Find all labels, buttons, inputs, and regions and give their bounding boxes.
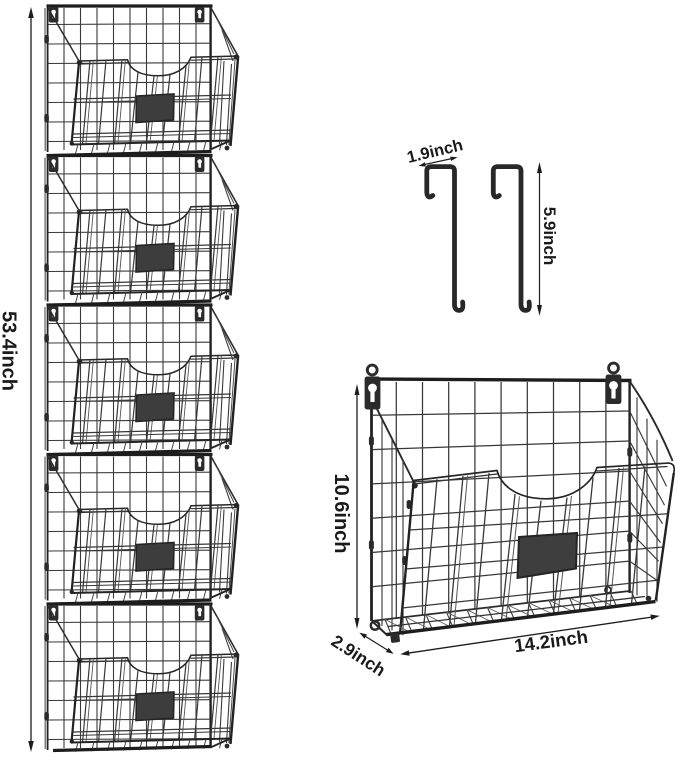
- svg-text:53.4inch: 53.4inch: [0, 311, 20, 391]
- svg-text:5.9inch: 5.9inch: [540, 207, 559, 266]
- svg-text:10.6inch: 10.6inch: [330, 473, 352, 553]
